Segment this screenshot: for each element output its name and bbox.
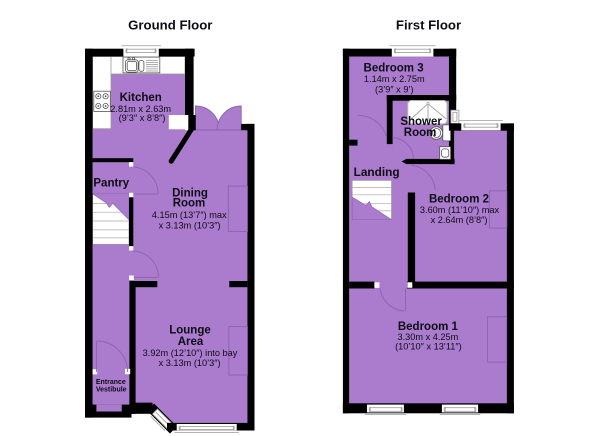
svg-text:Vestibule: Vestibule [96, 387, 127, 394]
svg-text:Landing: Landing [354, 165, 400, 179]
svg-text:Bedroom 2: Bedroom 2 [429, 194, 489, 206]
svg-text:Kitchen: Kitchen [120, 92, 162, 104]
svg-text:x 2.64m (8’8″): x 2.64m (8’8″) [431, 215, 488, 225]
svg-text:(3’9″ x 9’): (3’9″ x 9’) [375, 84, 413, 94]
svg-text:3.60m (11’10″) max: 3.60m (11’10″) max [420, 205, 500, 215]
svg-text:3.92m (12’10″) into bay: 3.92m (12’10″) into bay [143, 348, 238, 358]
svg-text:Room: Room [173, 197, 206, 209]
svg-text:Lounge: Lounge [169, 324, 211, 336]
svg-text:First Floor: First Floor [396, 18, 461, 33]
svg-text:x 3.13m (10’3″): x 3.13m (10’3″) [159, 220, 221, 230]
svg-text:Area: Area [178, 336, 204, 348]
svg-text:Pantry: Pantry [93, 178, 129, 190]
svg-text:x 3.13m (10’3″): x 3.13m (10’3″) [159, 358, 221, 368]
svg-text:Room: Room [404, 127, 437, 139]
svg-text:(10’10″ x 13’11″): (10’10″ x 13’11″) [395, 341, 462, 351]
svg-text:(9’3″ x 8’8″): (9’3″ x 8’8″) [119, 113, 166, 123]
svg-text:Bedroom 3: Bedroom 3 [364, 62, 424, 74]
svg-text:Ground Floor: Ground Floor [128, 18, 212, 33]
svg-text:4.15m (13’7″) max: 4.15m (13’7″) max [152, 210, 227, 220]
svg-text:1.14m x 2.75m: 1.14m x 2.75m [364, 74, 425, 84]
svg-text:Entrance: Entrance [96, 379, 126, 386]
